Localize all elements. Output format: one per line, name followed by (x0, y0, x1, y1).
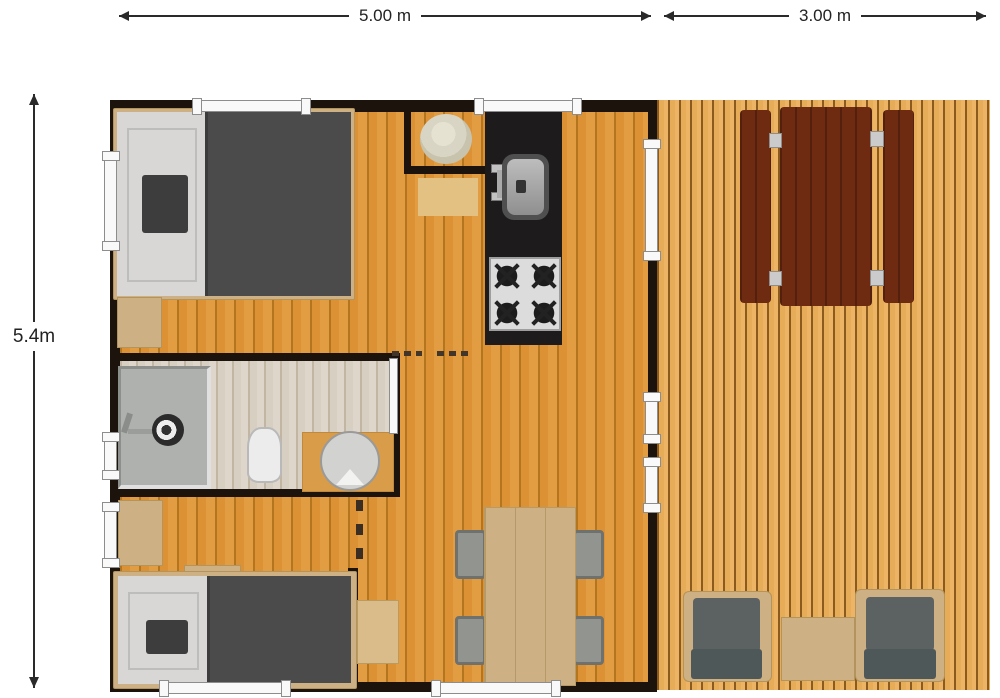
deck-armchair-right-back-cushion (866, 597, 934, 651)
window (160, 682, 290, 694)
arrow-right-icon (976, 11, 986, 21)
dining-table (484, 507, 576, 686)
closet-wall-bottom (404, 166, 487, 174)
toilet (247, 427, 282, 483)
bedroom2-door-marks (356, 500, 363, 572)
dimension-line-depth: 5.4m (25, 94, 43, 688)
bed1-pillow (142, 175, 188, 233)
dining-chair (455, 616, 486, 665)
window (432, 682, 560, 694)
stove-burner (494, 263, 520, 289)
dimension-line-deck-width: 3.00 m (664, 7, 986, 25)
floor-plan: 5.00 m 3.00 m 5.4m (0, 0, 1000, 698)
closet-wall-left (404, 105, 411, 173)
dimension-label-main-width: 5.00 m (349, 6, 421, 25)
dining-chair (455, 530, 486, 579)
picnic-table (780, 107, 872, 306)
deck-armchair-right-seat-cushion (864, 649, 936, 679)
window (104, 152, 117, 250)
dimension-rule (33, 94, 35, 688)
kitchen-sink (502, 154, 549, 220)
bedroom2-wardrobe (118, 500, 163, 566)
window (104, 503, 117, 567)
living-room-desk (357, 600, 399, 664)
patio-door-panel (645, 393, 658, 443)
picnic-table-bracket (769, 271, 782, 286)
window (193, 100, 310, 112)
arrow-left-icon (664, 11, 674, 21)
bed1-duvet (205, 112, 351, 296)
bed2-duvet (207, 576, 351, 683)
picnic-table-bracket (769, 133, 782, 148)
dining-chair (573, 616, 604, 665)
stove-burner (531, 263, 557, 289)
arrow-right-icon (641, 11, 651, 21)
picnic-bench-left (740, 110, 771, 303)
window (645, 140, 658, 260)
dimension-line-main-width: 5.00 m (119, 7, 651, 25)
dimension-label-deck-width: 3.00 m (789, 6, 861, 25)
threshold-marks (437, 351, 471, 356)
arrow-left-icon (119, 11, 129, 21)
window (104, 433, 117, 479)
bathroom-sink-basin (320, 431, 380, 491)
bedroom1-nightstand (117, 297, 162, 348)
deck-side-table (781, 617, 855, 681)
dimension-label-depth: 5.4m (12, 322, 56, 351)
stove-burner (531, 300, 557, 326)
patio-door-panel (645, 458, 658, 512)
dining-chair (573, 530, 604, 579)
bathroom-door (389, 358, 398, 434)
stove-burner (494, 300, 520, 326)
window (475, 100, 581, 112)
water-heater (420, 114, 472, 164)
bed2-pillow (146, 620, 188, 654)
picnic-table-bracket (870, 270, 884, 286)
showerhead-icon (152, 414, 184, 446)
deck-armchair-left-seat-cushion (691, 649, 762, 679)
arrow-down-icon (29, 677, 39, 688)
picnic-table-bracket (870, 131, 884, 147)
arrow-up-icon (29, 94, 39, 105)
deck-armchair-left-back-cushion (693, 598, 760, 652)
picnic-bench-right (883, 110, 914, 303)
threshold-marks (392, 351, 422, 356)
kitchen-mat (418, 178, 478, 216)
